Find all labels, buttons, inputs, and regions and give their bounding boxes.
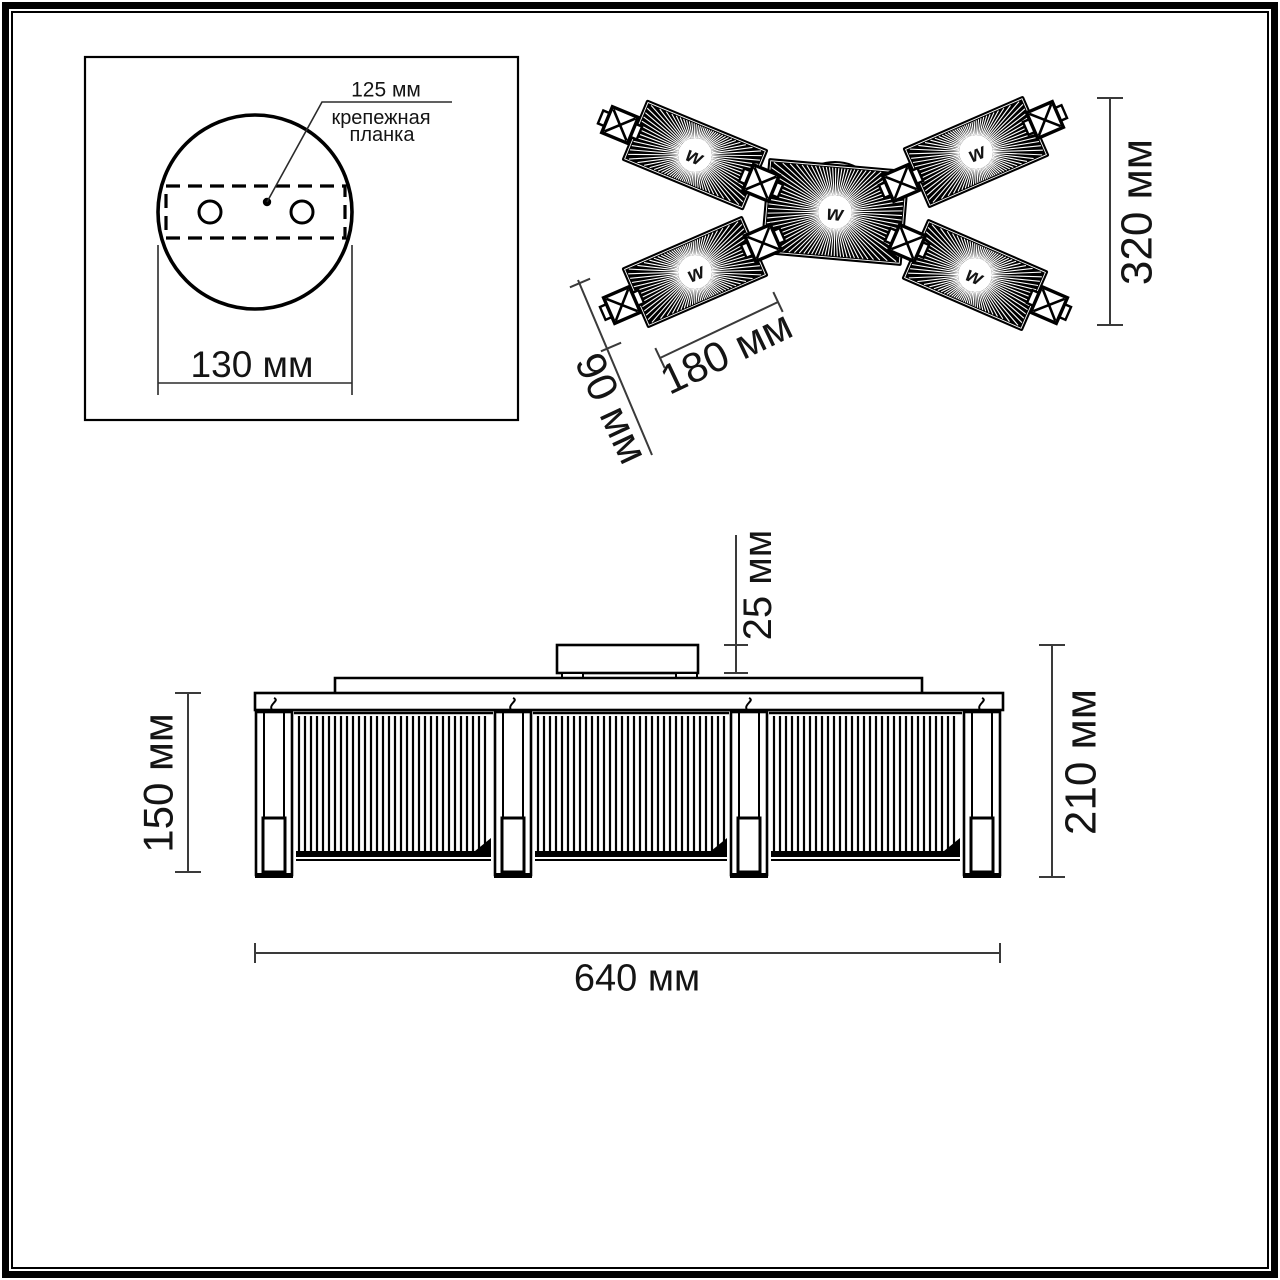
ceiling-plate-upper [335, 678, 922, 693]
support-pillar [494, 698, 532, 878]
lamp-shade-top-left: w [621, 99, 768, 210]
dimension-label-25: 25 мм [736, 530, 780, 641]
mounting-plate-diagram: 125 мм крепежная планка 130 мм [85, 57, 518, 420]
mounting-plate-circle [158, 115, 352, 309]
drawing-svg: 125 мм крепежная планка 130 мм w w w w w [0, 0, 1280, 1280]
connector-ornament [1020, 99, 1070, 141]
shade-panel [533, 713, 729, 860]
dimension-label-640: 640 мм [574, 957, 700, 999]
top-view-diagram: w w w w w 320 мм 180 мм 90 мм [566, 95, 1161, 470]
connector-ornament [597, 284, 647, 326]
screw-hole-right [291, 201, 313, 223]
dimension-label-320: 320 мм [1112, 139, 1161, 285]
technical-drawing-page: 125 мм крепежная планка 130 мм w w w w w [0, 0, 1280, 1280]
dimension-label-150: 150 мм [135, 713, 182, 853]
support-pillar [963, 698, 1001, 878]
shade-panel [769, 713, 962, 860]
connector-ornament [1024, 284, 1074, 326]
screw-hole-left [199, 201, 221, 223]
bracket-label-line2: планка [350, 124, 416, 146]
dimension-label-130: 130 мм [191, 344, 314, 385]
dimension-label-210: 210 мм [1056, 689, 1105, 835]
support-pillar [730, 698, 768, 878]
dimension-label-125: 125 мм [351, 78, 421, 101]
side-view-diagram: 25 мм 150 мм 210 мм 640 мм [135, 530, 1106, 1000]
shade-panel [294, 713, 493, 860]
ceiling-plate [255, 693, 1003, 710]
connector-ornament [595, 104, 645, 146]
dimension-label-90: 90 мм [566, 346, 658, 471]
canopy-box [557, 645, 698, 673]
lamp-shade-bottom-left: w [621, 215, 768, 328]
support-pillar [255, 698, 293, 878]
